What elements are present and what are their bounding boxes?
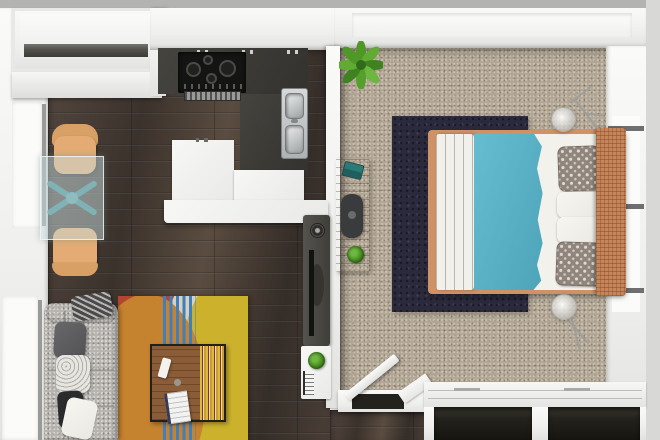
coffee-table-slats <box>200 346 224 420</box>
sink-bowl <box>285 93 304 119</box>
floor-lamp-lower <box>551 294 577 320</box>
peninsula-handle <box>196 138 208 142</box>
wall-top-bedroom-recess <box>352 13 632 37</box>
pillow-white-2 <box>557 217 601 243</box>
floor-lamp-upper <box>551 107 576 132</box>
cabinet-handle <box>287 50 298 54</box>
entry-closet-shelf-slot <box>24 44 148 57</box>
sofa-pillow-knit <box>56 355 90 393</box>
closet-track-tick <box>454 388 480 391</box>
peninsula-counter <box>172 140 234 202</box>
closet-track-line <box>428 398 642 399</box>
pillow-white-1 <box>557 192 601 218</box>
book <box>164 391 191 425</box>
closet <box>424 382 646 440</box>
hallway-floor <box>330 410 426 440</box>
cooktop-controls <box>184 84 242 89</box>
speaker <box>310 223 325 238</box>
closet-frame-left <box>424 407 434 440</box>
kitchen-sink <box>281 88 308 159</box>
closet-door-track <box>424 382 646 407</box>
closet-opening-right <box>548 407 640 440</box>
burner <box>186 62 201 77</box>
peninsula-counter-step <box>234 170 304 202</box>
sink-bowl <box>285 125 304 154</box>
door-opening <box>352 394 404 409</box>
closet-track-tick <box>564 388 590 391</box>
range-hood <box>184 91 241 101</box>
bed <box>428 130 624 294</box>
entry-cabinet <box>12 72 162 98</box>
foot-blanket <box>436 134 474 290</box>
coffee-table <box>150 344 226 422</box>
book-stack <box>303 371 314 395</box>
headboard <box>596 128 626 296</box>
outside-strip-right <box>646 0 660 440</box>
pillow-patterned-top <box>557 145 601 191</box>
dining-chair-bottom-back <box>52 262 98 276</box>
burner <box>219 60 236 77</box>
burner <box>203 55 213 65</box>
tv-screen <box>309 250 314 336</box>
window-sill-lower <box>38 300 42 440</box>
wall-top-kitchen <box>150 8 338 50</box>
closet-divider <box>532 407 548 440</box>
glass-dining-table <box>40 156 104 240</box>
closet-frame-right <box>640 407 646 440</box>
desk-plant <box>347 246 364 263</box>
burner <box>206 73 217 84</box>
closet-opening-left <box>434 407 532 440</box>
teal-blanket <box>474 134 544 290</box>
faucet <box>291 119 298 123</box>
corner-plant <box>339 41 383 89</box>
pillow-patterned-bottom <box>555 241 602 287</box>
desk-chair <box>341 194 363 238</box>
shelf-plant <box>308 352 325 369</box>
coaster <box>174 379 181 386</box>
window-left-upper <box>12 102 42 228</box>
floorplan-3d-render <box>0 0 660 440</box>
window-left-lower <box>2 296 38 440</box>
table-base-hub <box>66 192 78 204</box>
desk-chair-hub <box>348 211 356 219</box>
